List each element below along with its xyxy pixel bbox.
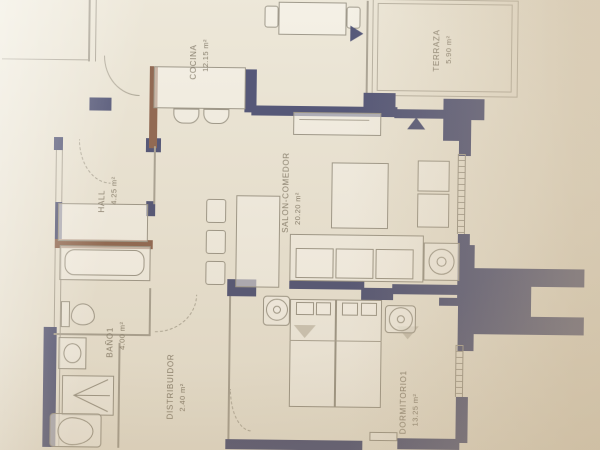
wall-segment xyxy=(225,439,362,450)
wall-segment xyxy=(361,288,393,300)
room-area: 4.25 m² xyxy=(109,129,122,213)
wall-segment xyxy=(397,438,459,450)
floor-plan-photo: COCINA 12.15 m² TERRAZA 5.90 m² HALL 4.2… xyxy=(0,0,600,450)
sideboard xyxy=(293,112,381,136)
sofa-cushion xyxy=(295,248,333,278)
pillar xyxy=(457,245,474,351)
toilet-tank xyxy=(61,301,70,327)
divider xyxy=(117,343,120,448)
entrance-arrow-icon xyxy=(350,26,363,42)
window xyxy=(457,154,466,234)
pillar xyxy=(474,268,584,287)
pillow xyxy=(342,303,358,316)
dining-table xyxy=(235,195,280,288)
chair xyxy=(206,230,226,254)
bathtub-basin xyxy=(64,249,144,276)
room-area: 2.40 m² xyxy=(177,336,190,420)
pillar xyxy=(474,286,531,317)
pillar xyxy=(474,316,584,335)
divider xyxy=(2,58,89,60)
divider xyxy=(366,1,369,95)
room-area: 20.20 m² xyxy=(292,149,305,233)
sofa-cushion xyxy=(335,248,373,278)
divider xyxy=(227,296,231,439)
wall-segment xyxy=(54,137,63,150)
room-area: 13.25 m² xyxy=(410,350,423,434)
side-table-circle xyxy=(437,257,447,267)
rug xyxy=(331,162,389,229)
chair xyxy=(206,199,226,223)
chair xyxy=(205,261,225,285)
armchair xyxy=(417,193,449,227)
divider xyxy=(88,0,91,61)
wall-segment xyxy=(439,298,459,306)
floor-plan: COCINA 12.15 m² TERRAZA 5.90 m² HALL 4.2… xyxy=(0,0,600,450)
door-leaf xyxy=(369,432,397,441)
room-name: SALON-COMEDOR xyxy=(281,152,291,233)
wall-segment xyxy=(459,118,471,156)
divider xyxy=(153,146,156,204)
kitchen-sink xyxy=(203,109,229,124)
chair xyxy=(264,6,278,28)
room-name: TERRAZA xyxy=(432,29,442,71)
wall-segment xyxy=(89,97,111,110)
window xyxy=(455,345,464,397)
room-area: 12.15 m² xyxy=(200,0,213,80)
blanket-fold xyxy=(294,325,316,338)
armchair xyxy=(417,160,449,191)
pillow xyxy=(316,302,331,315)
room-name: BAÑO1 xyxy=(105,327,114,358)
wall-segment xyxy=(289,281,364,290)
door-arc xyxy=(155,294,197,333)
room-name: DORMITORIO1 xyxy=(398,370,408,434)
room-area: 4.00 m² xyxy=(117,274,130,358)
room-label-salon-comedor: SALON-COMEDOR 20.20 m² xyxy=(280,149,307,233)
room-label-bano1: BAÑO1 4.00 m² xyxy=(104,274,131,358)
room-name: HALL xyxy=(97,190,106,213)
divider xyxy=(149,288,152,336)
nightstand-lamp xyxy=(397,315,405,323)
sofa-cushion xyxy=(375,249,413,279)
pillow xyxy=(361,303,377,316)
room-label-terraza: TERRAZA 5.90 m² xyxy=(431,0,458,72)
room-name: COCINA xyxy=(189,44,198,79)
room-label-distribuidor: DISTRIBUIDOR 2.40 m² xyxy=(165,335,192,419)
divider xyxy=(54,333,150,336)
divider xyxy=(95,0,97,61)
bathroom-sink-basin xyxy=(63,343,81,363)
room-name: DISTRIBUIDOR xyxy=(166,354,176,420)
door-arc xyxy=(104,56,140,96)
toilet-bowl xyxy=(71,303,95,325)
room-label-dormitorio1: DORMITORIO1 13.25 m² xyxy=(397,350,424,434)
wall-segment xyxy=(392,284,470,295)
pillow xyxy=(296,302,314,315)
room-label-cocina: COCINA 12.15 m² xyxy=(188,0,215,80)
wall-segment xyxy=(455,397,468,443)
dining-table xyxy=(278,2,346,36)
shower-icon xyxy=(62,375,114,416)
room-label-hall: HALL 4.25 m² xyxy=(96,129,123,213)
kitchen-sink xyxy=(173,108,199,123)
room-area: 5.90 m² xyxy=(443,0,456,72)
nightstand-lamp xyxy=(273,306,281,314)
door-arc xyxy=(229,389,252,431)
north-arrow-icon xyxy=(407,117,425,129)
